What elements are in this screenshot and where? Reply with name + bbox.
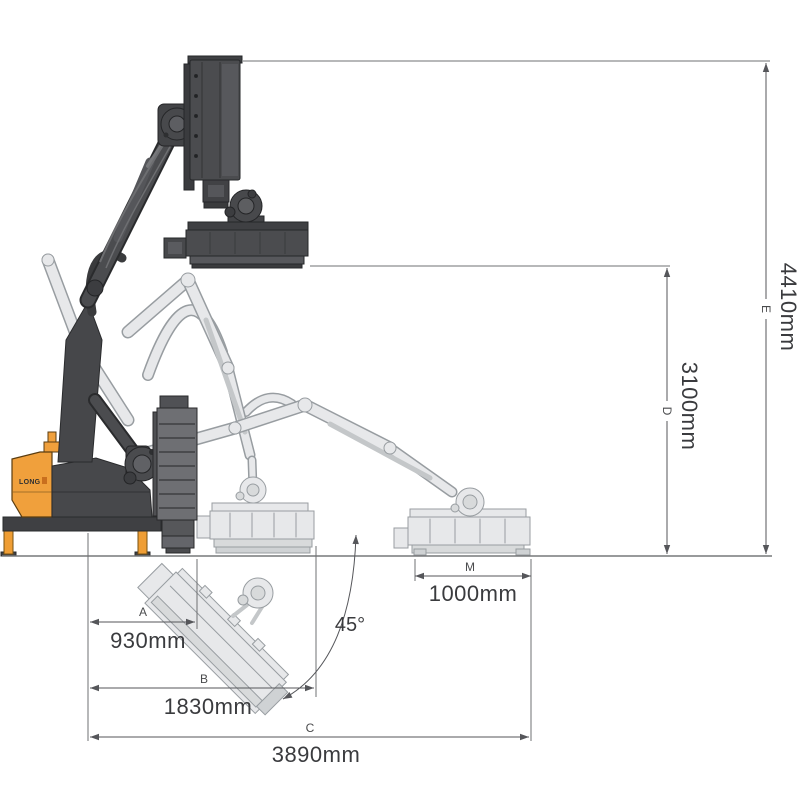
diagram-canvas: LONG bbox=[0, 0, 800, 800]
dim-m-letter: M bbox=[465, 560, 475, 574]
brand-logo-text: LONG bbox=[19, 479, 41, 486]
dim-b-letter: B bbox=[200, 672, 208, 686]
flail-head-raised bbox=[184, 56, 242, 208]
flail-head-stowed-horizontal bbox=[164, 190, 308, 268]
dim-e-value: 4410mm bbox=[776, 263, 800, 352]
flail-head-ground-right bbox=[394, 488, 530, 555]
dim-e-letter: E bbox=[759, 305, 773, 313]
flail-head-ground-center bbox=[197, 477, 314, 553]
dim-a-letter: A bbox=[139, 605, 147, 619]
dim-b-value: 1830mm bbox=[164, 694, 253, 719]
dim-d-value: 3100mm bbox=[677, 362, 702, 451]
dim-a-value: 930mm bbox=[110, 628, 186, 653]
dim-m-value: 1000mm bbox=[429, 581, 518, 606]
angle-value: 45° bbox=[335, 614, 365, 636]
dimension-diagram: LONG bbox=[0, 0, 800, 800]
dim-c-value: 3890mm bbox=[272, 742, 361, 767]
dim-d-letter: D bbox=[660, 407, 674, 416]
dim-c-letter: C bbox=[306, 721, 315, 735]
